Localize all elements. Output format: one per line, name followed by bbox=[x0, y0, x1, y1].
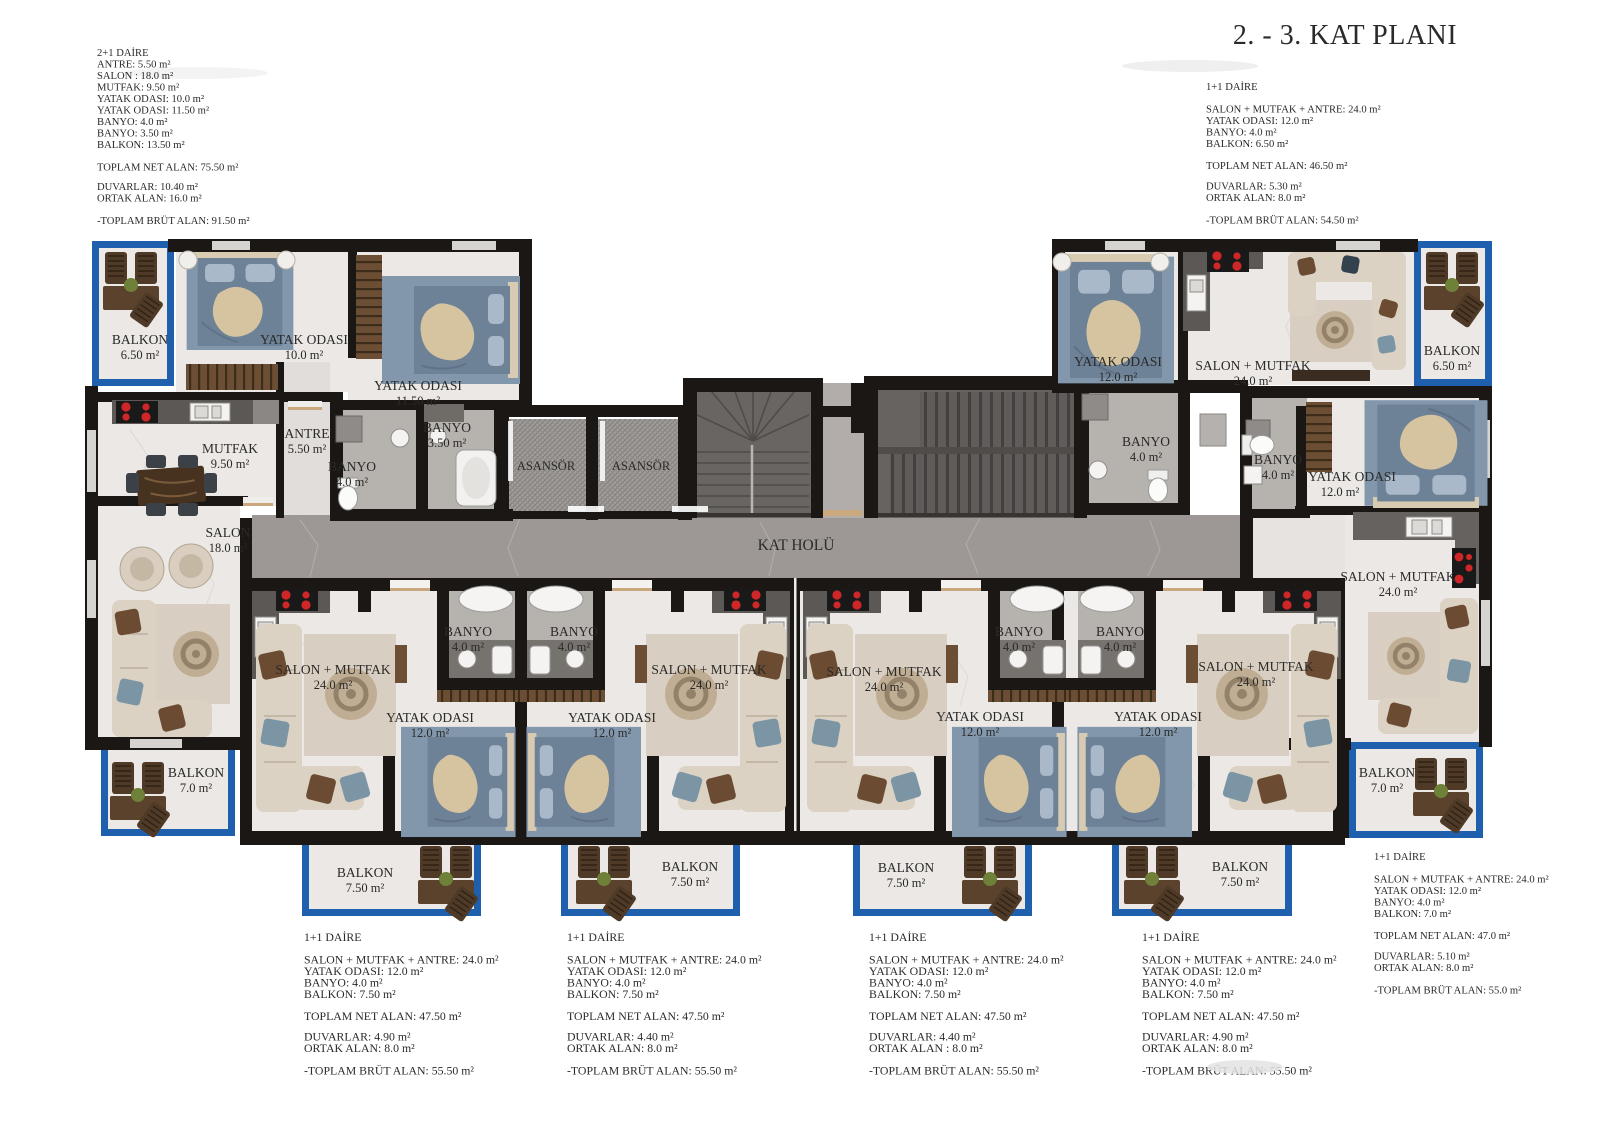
svg-text:1+1 DAİRE: 1+1 DAİRE bbox=[1206, 81, 1258, 93]
svg-text:10.0 m²: 10.0 m² bbox=[285, 348, 324, 362]
svg-text:1+1 DAİRE: 1+1 DAİRE bbox=[1142, 930, 1199, 944]
svg-text:ORTAK ALAN : 8.0 m²: ORTAK ALAN : 8.0 m² bbox=[869, 1041, 983, 1055]
svg-text:2. - 3. KAT PLANI: 2. - 3. KAT PLANI bbox=[1233, 20, 1457, 51]
svg-text:11.50 m²: 11.50 m² bbox=[396, 394, 441, 408]
svg-text:SALON + MUTFAK + ANTRE: 24.0 m: SALON + MUTFAK + ANTRE: 24.0 m² bbox=[1206, 105, 1381, 116]
svg-text:YATAK ODASI: YATAK ODASI bbox=[386, 710, 474, 725]
svg-text:1+1 DAİRE: 1+1 DAİRE bbox=[304, 930, 361, 944]
svg-text:TOPLAM NET ALAN: 46.50 m²: TOPLAM NET ALAN: 46.50 m² bbox=[1206, 161, 1347, 172]
svg-text:YATAK ODASI: YATAK ODASI bbox=[1308, 469, 1396, 484]
svg-text:4.0 m²: 4.0 m² bbox=[336, 475, 368, 489]
svg-text:SALON + MUTFAK: SALON + MUTFAK bbox=[1340, 569, 1456, 584]
svg-text:ASANSÖR: ASANSÖR bbox=[517, 459, 576, 473]
svg-text:BALKON: 7.0 m²: BALKON: 7.0 m² bbox=[1374, 909, 1451, 920]
svg-text:SALON + MUTFAK + ANTRE: 24.0 m: SALON + MUTFAK + ANTRE: 24.0 m² bbox=[1374, 875, 1549, 886]
svg-text:YATAK ODASI: 12.0 m²: YATAK ODASI: 12.0 m² bbox=[1374, 886, 1481, 897]
svg-text:ORTAK ALAN: 8.0 m²: ORTAK ALAN: 8.0 m² bbox=[1142, 1041, 1253, 1055]
svg-text:TOPLAM NET ALAN: 47.50 m²: TOPLAM NET ALAN: 47.50 m² bbox=[567, 1009, 725, 1023]
svg-text:TOPLAM NET ALAN: 47.50 m²: TOPLAM NET ALAN: 47.50 m² bbox=[1142, 1009, 1300, 1023]
svg-text:SALON + MUTFAK: SALON + MUTFAK bbox=[275, 662, 391, 677]
svg-text:12.0 m²: 12.0 m² bbox=[961, 725, 1000, 739]
svg-text:4.0 m²: 4.0 m² bbox=[1003, 640, 1035, 654]
svg-text:ORTAK ALAN: 8.0 m²: ORTAK ALAN: 8.0 m² bbox=[1374, 963, 1473, 974]
svg-text:BANYO: 4.0 m²: BANYO: 4.0 m² bbox=[97, 117, 168, 128]
svg-text:KAT HOLÜ: KAT HOLÜ bbox=[758, 537, 835, 554]
svg-text:SALON : 18.0 m²: SALON : 18.0 m² bbox=[97, 71, 173, 82]
svg-text:ORTAK ALAN: 8.0 m²: ORTAK ALAN: 8.0 m² bbox=[1206, 193, 1305, 204]
svg-text:ORTAK ALAN: 16.0 m²: ORTAK ALAN: 16.0 m² bbox=[97, 194, 202, 205]
svg-text:BALKON: BALKON bbox=[168, 765, 224, 780]
svg-text:ORTAK ALAN: 8.0 m²: ORTAK ALAN: 8.0 m² bbox=[567, 1041, 678, 1055]
svg-text:BANYO: BANYO bbox=[423, 420, 471, 435]
svg-text:BALKON: BALKON bbox=[662, 859, 718, 874]
svg-text:12.0 m²: 12.0 m² bbox=[1139, 725, 1178, 739]
svg-text:BALKON: 6.50 m²: BALKON: 6.50 m² bbox=[1206, 139, 1288, 150]
svg-text:SALON + MUTFAK: SALON + MUTFAK bbox=[1198, 659, 1314, 674]
svg-text:1+1 DAİRE: 1+1 DAİRE bbox=[567, 930, 624, 944]
svg-text:DUVARLAR: 10.40 m²: DUVARLAR: 10.40 m² bbox=[97, 182, 198, 193]
svg-text:YATAK ODASI: 12.0 m²: YATAK ODASI: 12.0 m² bbox=[1206, 116, 1313, 127]
svg-text:BALKON: BALKON bbox=[1424, 343, 1480, 358]
svg-text:4.0 m²: 4.0 m² bbox=[1104, 640, 1136, 654]
svg-text:TOPLAM NET ALAN: 47.50 m²: TOPLAM NET ALAN: 47.50 m² bbox=[304, 1009, 462, 1023]
svg-text:YATAK ODASI: YATAK ODASI bbox=[374, 378, 462, 393]
svg-text:TOPLAM NET ALAN: 47.50 m²: TOPLAM NET ALAN: 47.50 m² bbox=[869, 1009, 1027, 1023]
svg-text:ASANSÖR: ASANSÖR bbox=[612, 459, 671, 473]
svg-text:4.0 m²: 4.0 m² bbox=[1130, 450, 1162, 464]
svg-text:18.0 m²: 18.0 m² bbox=[209, 541, 248, 555]
svg-text:BALKON: BALKON bbox=[337, 865, 393, 880]
svg-text:12.0 m²: 12.0 m² bbox=[1321, 485, 1360, 499]
svg-text:24.0 m²: 24.0 m² bbox=[1379, 585, 1418, 599]
svg-text:-TOPLAM BRÜT ALAN: 55.50 m²: -TOPLAM BRÜT ALAN: 55.50 m² bbox=[304, 1064, 474, 1078]
svg-text:YATAK ODASI: YATAK ODASI bbox=[568, 710, 656, 725]
svg-text:-TOPLAM BRÜT ALAN: 91.50 m²: -TOPLAM BRÜT ALAN: 91.50 m² bbox=[97, 215, 250, 227]
svg-text:3.50 m²: 3.50 m² bbox=[428, 436, 467, 450]
svg-text:2+1 DAİRE: 2+1 DAİRE bbox=[97, 47, 149, 59]
svg-text:BALKON: BALKON bbox=[112, 332, 168, 347]
svg-text:MUTFAK: 9.50 m²: MUTFAK: 9.50 m² bbox=[97, 83, 179, 94]
svg-text:12.0 m²: 12.0 m² bbox=[593, 726, 632, 740]
svg-text:12.0 m²: 12.0 m² bbox=[411, 726, 450, 740]
svg-text:ORTAK ALAN: 8.0 m²: ORTAK ALAN: 8.0 m² bbox=[304, 1041, 415, 1055]
svg-text:-TOPLAM BRÜT ALAN: 54.50 m²: -TOPLAM BRÜT ALAN: 54.50 m² bbox=[1206, 215, 1359, 227]
svg-text:DUVARLAR: 5.10 m²: DUVARLAR: 5.10 m² bbox=[1374, 952, 1470, 963]
svg-text:-TOPLAM BRÜT ALAN: 55.0 m²: -TOPLAM BRÜT ALAN: 55.0 m² bbox=[1374, 985, 1521, 997]
svg-text:BALKON: 7.50 m²: BALKON: 7.50 m² bbox=[869, 987, 961, 1001]
svg-text:7.50 m²: 7.50 m² bbox=[671, 875, 710, 889]
svg-text:YATAK ODASI: YATAK ODASI bbox=[1074, 354, 1162, 369]
svg-text:DUVARLAR: 5.30 m²: DUVARLAR: 5.30 m² bbox=[1206, 182, 1302, 193]
svg-text:SALON: SALON bbox=[205, 525, 250, 540]
svg-text:TOPLAM NET ALAN: 47.0 m²: TOPLAM NET ALAN: 47.0 m² bbox=[1374, 931, 1510, 942]
svg-text:BANYO: BANYO bbox=[550, 624, 598, 639]
svg-text:BALKON: 7.50 m²: BALKON: 7.50 m² bbox=[304, 987, 396, 1001]
svg-text:SALON + MUTFAK: SALON + MUTFAK bbox=[826, 664, 942, 679]
svg-text:4.0 m²: 4.0 m² bbox=[558, 640, 590, 654]
svg-text:4.0 m²: 4.0 m² bbox=[1262, 468, 1294, 482]
svg-text:YATAK ODASI: YATAK ODASI bbox=[1114, 709, 1202, 724]
svg-text:BALKON: BALKON bbox=[1359, 765, 1415, 780]
svg-text:BANYO: BANYO bbox=[995, 624, 1043, 639]
svg-text:BALKON: 7.50 m²: BALKON: 7.50 m² bbox=[567, 987, 659, 1001]
svg-text:BALKON: 7.50 m²: BALKON: 7.50 m² bbox=[1142, 987, 1234, 1001]
svg-text:ANTRE: ANTRE bbox=[285, 426, 330, 441]
svg-text:BANYO: BANYO bbox=[1254, 452, 1302, 467]
svg-text:BANYO: 3.50 m²: BANYO: 3.50 m² bbox=[97, 129, 173, 140]
svg-text:7.0 m²: 7.0 m² bbox=[180, 781, 212, 795]
svg-text:7.50 m²: 7.50 m² bbox=[1221, 875, 1260, 889]
svg-text:TOPLAM NET ALAN: 75.50 m²: TOPLAM NET ALAN: 75.50 m² bbox=[97, 163, 238, 174]
svg-text:YATAK ODASI: YATAK ODASI bbox=[260, 332, 348, 347]
svg-text:24.0 m²: 24.0 m² bbox=[865, 680, 904, 694]
svg-text:BANYO: BANYO bbox=[1096, 624, 1144, 639]
svg-text:SALON + MUTFAK: SALON + MUTFAK bbox=[651, 662, 767, 677]
svg-text:BANYO: 4.0 m²: BANYO: 4.0 m² bbox=[1374, 898, 1445, 909]
svg-text:YATAK ODASI: 11.50 m²: YATAK ODASI: 11.50 m² bbox=[97, 106, 209, 117]
svg-text:BALKON: BALKON bbox=[878, 860, 934, 875]
svg-text:BANYO: 4.0 m²: BANYO: 4.0 m² bbox=[1206, 128, 1277, 139]
svg-text:4.0 m²: 4.0 m² bbox=[452, 640, 484, 654]
svg-text:YATAK ODASI: YATAK ODASI bbox=[936, 709, 1024, 724]
svg-text:6.50 m²: 6.50 m² bbox=[1433, 359, 1472, 373]
svg-text:SALON + MUTFAK: SALON + MUTFAK bbox=[1195, 358, 1311, 373]
svg-text:-TOPLAM BRÜT ALAN: 55.50 m²: -TOPLAM BRÜT ALAN: 55.50 m² bbox=[567, 1064, 737, 1078]
svg-text:24.0 m²: 24.0 m² bbox=[690, 678, 729, 692]
svg-text:ANTRE: 5.50 m²: ANTRE: 5.50 m² bbox=[97, 60, 171, 71]
svg-text:MUTFAK: MUTFAK bbox=[202, 441, 258, 456]
svg-text:7.50 m²: 7.50 m² bbox=[346, 881, 385, 895]
svg-text:BALKON: BALKON bbox=[1212, 859, 1268, 874]
svg-text:-TOPLAM BRÜT ALAN: 55.50 m²: -TOPLAM BRÜT ALAN: 55.50 m² bbox=[869, 1064, 1039, 1078]
svg-text:BANYO: BANYO bbox=[444, 624, 492, 639]
svg-text:9.50 m²: 9.50 m² bbox=[211, 457, 250, 471]
svg-text:YATAK ODASI: 10.0 m²: YATAK ODASI: 10.0 m² bbox=[97, 94, 204, 105]
svg-text:24.0 m²: 24.0 m² bbox=[1237, 675, 1276, 689]
svg-text:BALKON: 13.50 m²: BALKON: 13.50 m² bbox=[97, 140, 185, 151]
svg-text:5.50 m²: 5.50 m² bbox=[288, 442, 327, 456]
svg-text:6.50 m²: 6.50 m² bbox=[121, 348, 160, 362]
svg-text:1+1 DAİRE: 1+1 DAİRE bbox=[1374, 851, 1426, 863]
svg-text:1+1 DAİRE: 1+1 DAİRE bbox=[869, 930, 926, 944]
svg-text:BANYO: BANYO bbox=[1122, 434, 1170, 449]
svg-text:7.0 m²: 7.0 m² bbox=[1371, 781, 1403, 795]
svg-text:12.0 m²: 12.0 m² bbox=[1099, 370, 1138, 384]
svg-text:24.0 m²: 24.0 m² bbox=[1234, 374, 1273, 388]
svg-text:BANYO: BANYO bbox=[328, 459, 376, 474]
svg-text:24.0 m²: 24.0 m² bbox=[314, 678, 353, 692]
svg-text:7.50 m²: 7.50 m² bbox=[887, 876, 926, 890]
